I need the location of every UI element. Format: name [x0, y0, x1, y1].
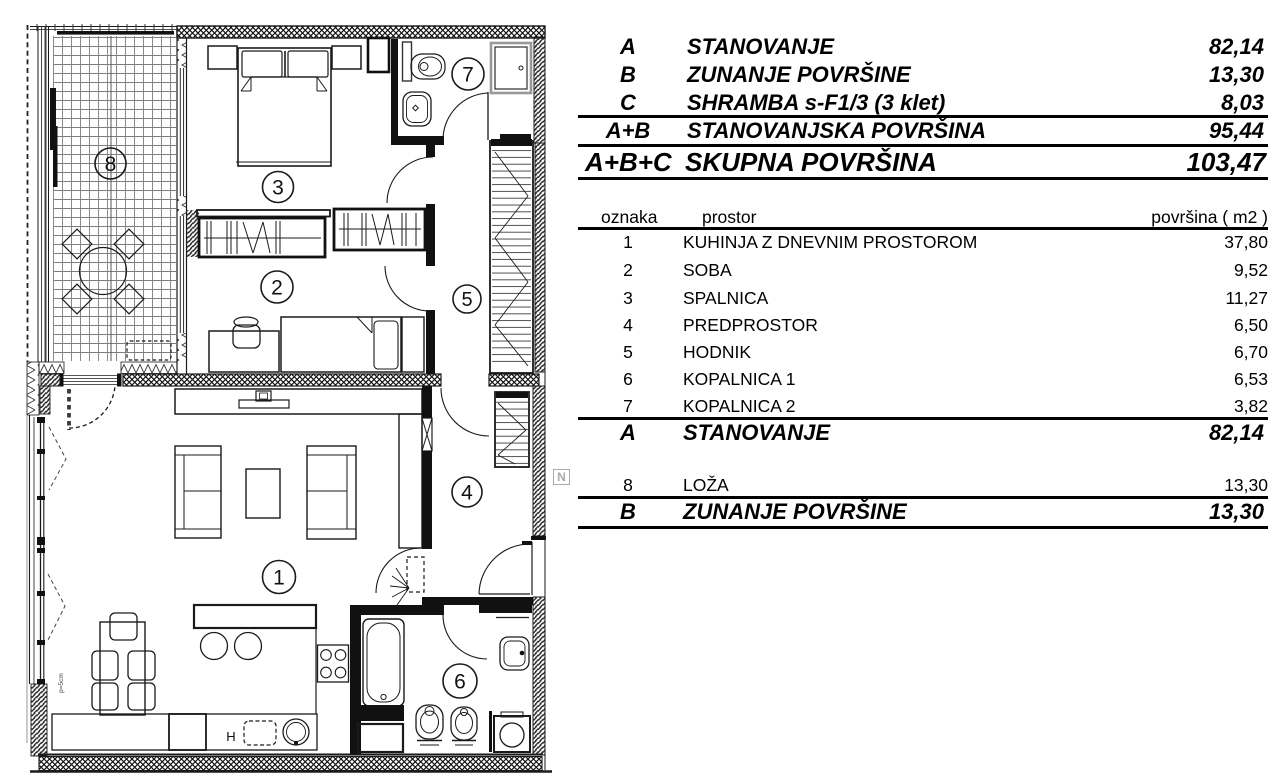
svg-text:8: 8: [105, 153, 117, 176]
svg-text:6: 6: [454, 671, 466, 694]
svg-text:5: 5: [461, 289, 472, 311]
svg-text:1: 1: [273, 567, 285, 590]
svg-text:2: 2: [271, 277, 283, 300]
svg-text:3: 3: [272, 177, 284, 200]
svg-text:7: 7: [462, 64, 474, 87]
svg-text:4: 4: [461, 482, 473, 505]
svg-text:H: H: [226, 729, 235, 744]
svg-text:p=5cm: p=5cm: [58, 673, 65, 693]
